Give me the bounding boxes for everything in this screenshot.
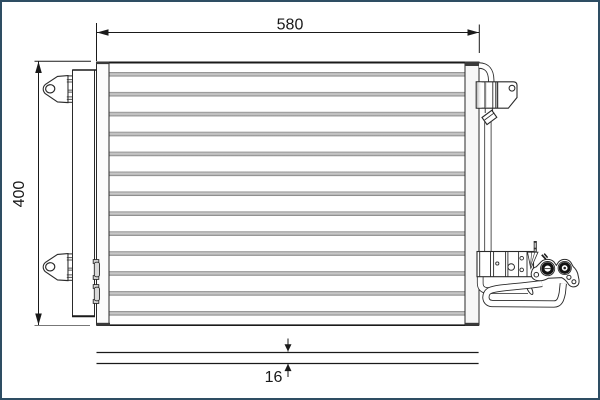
svg-text:16: 16 xyxy=(265,369,283,386)
svg-text:580: 580 xyxy=(277,17,304,34)
svg-text:400: 400 xyxy=(11,181,28,208)
